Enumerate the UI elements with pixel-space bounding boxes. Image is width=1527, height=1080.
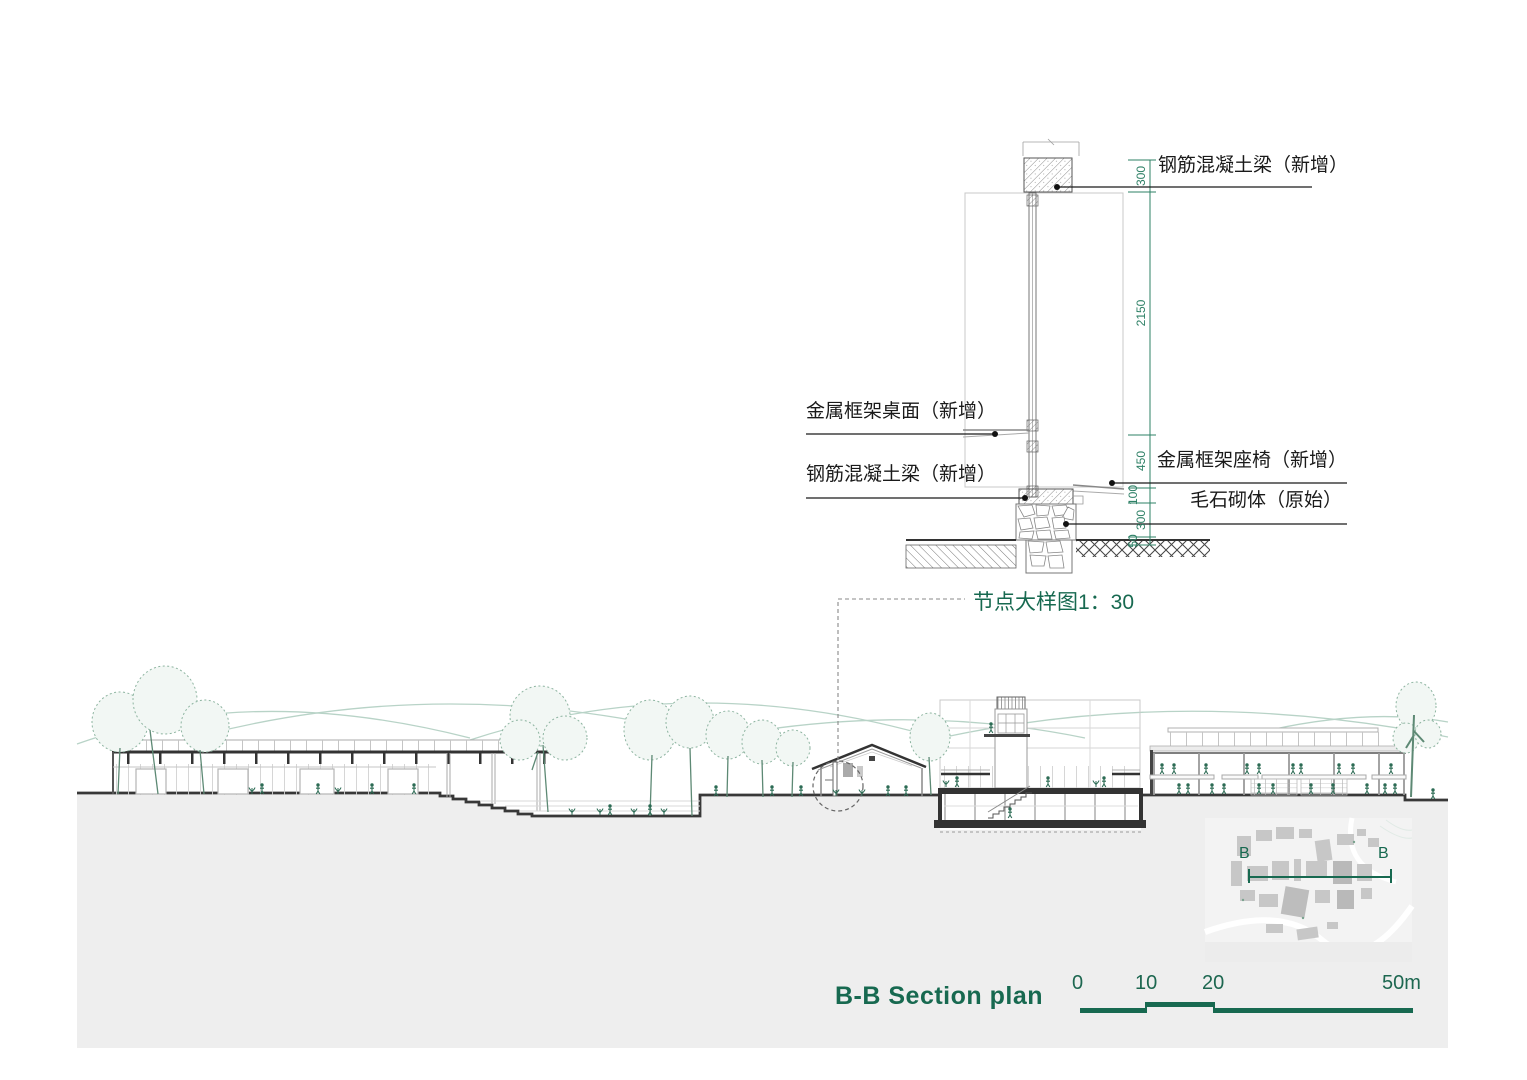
dim-300-top: 300 bbox=[1134, 166, 1148, 186]
label-beam-left: 钢筋混凝土梁（新增） bbox=[806, 465, 996, 484]
dim-300-bottom: 300 bbox=[1134, 510, 1148, 530]
scale-tick-20: 20 bbox=[1202, 972, 1224, 995]
dim-100: 100 bbox=[1126, 485, 1140, 505]
main-building bbox=[934, 697, 1146, 832]
section-title: B-B Section plan bbox=[835, 982, 1043, 1011]
bb-section-sheet: 钢筋混凝土梁（新增） 金属框架桌面（新增） 钢筋混凝土梁（新增） 金属框架座椅（… bbox=[0, 0, 1527, 1080]
scale-tick-0: 0 bbox=[1072, 972, 1083, 995]
label-seat: 金属框架座椅（新增） bbox=[1157, 451, 1347, 470]
label-desk: 金属框架桌面（新增） bbox=[806, 402, 996, 421]
dim-450: 450 bbox=[1134, 451, 1148, 471]
label-masonry: 毛石砌体（原始） bbox=[1190, 491, 1342, 510]
label-beam-top: 钢筋混凝土梁（新增） bbox=[1158, 156, 1348, 175]
dim-2150: 2150 bbox=[1134, 300, 1148, 327]
inset-marker-b-right: B bbox=[1378, 845, 1389, 863]
dim-50: 50 bbox=[1126, 534, 1140, 547]
scale-tick-10: 10 bbox=[1135, 972, 1157, 995]
scale-tick-50m: 50m bbox=[1382, 972, 1421, 995]
node-building bbox=[812, 745, 926, 796]
detail-note: 节点大样图1：30 bbox=[973, 586, 1134, 616]
inset-site-plan bbox=[1205, 818, 1412, 962]
inset-marker-b-left: B bbox=[1239, 845, 1250, 863]
